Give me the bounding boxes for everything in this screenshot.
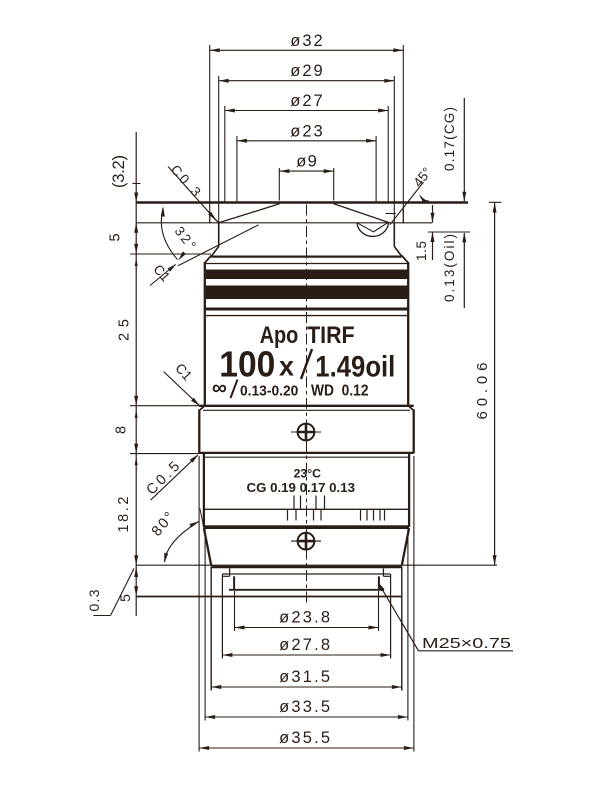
svg-text:(3.2): (3.2) [110, 155, 128, 188]
svg-text:ø27: ø27 [290, 92, 322, 110]
svg-text:M25×0.75: M25×0.75 [422, 635, 511, 652]
svg-text:ø23.8: ø23.8 [279, 609, 330, 627]
svg-text:0.3: 0.3 [86, 589, 102, 611]
svg-text:WD 0.12: WD 0.12 [311, 383, 369, 400]
svg-text:ø33.5: ø33.5 [279, 698, 330, 716]
svg-text:5: 5 [108, 233, 124, 241]
svg-text:ø27.8: ø27.8 [279, 636, 330, 654]
svg-text:ø23: ø23 [290, 122, 322, 140]
svg-text:1.5: 1.5 [414, 241, 429, 261]
svg-text:ø29: ø29 [290, 62, 322, 80]
svg-text:23°C: 23°C [294, 469, 321, 481]
svg-text:0.13-0.20: 0.13-0.20 [240, 384, 298, 400]
svg-text:ø31.5: ø31.5 [279, 668, 330, 686]
svg-text:100: 100 [219, 344, 275, 385]
svg-text:0.17(CG): 0.17(CG) [442, 107, 457, 171]
svg-text:8: 8 [114, 426, 130, 434]
svg-text:18.2: 18.2 [116, 497, 132, 533]
svg-text:CG 0.19 0.17 0.13: CG 0.19 0.17 0.13 [247, 481, 356, 495]
svg-text:0.13(Oil): 0.13(Oil) [442, 234, 457, 302]
svg-text:ø35.5: ø35.5 [279, 729, 330, 747]
svg-text:∞: ∞ [212, 377, 227, 400]
svg-text:x: x [279, 351, 294, 382]
svg-text:ø32: ø32 [290, 32, 322, 50]
svg-text:TIRF: TIRF [307, 322, 355, 349]
svg-text:1.49oil: 1.49oil [315, 351, 395, 384]
